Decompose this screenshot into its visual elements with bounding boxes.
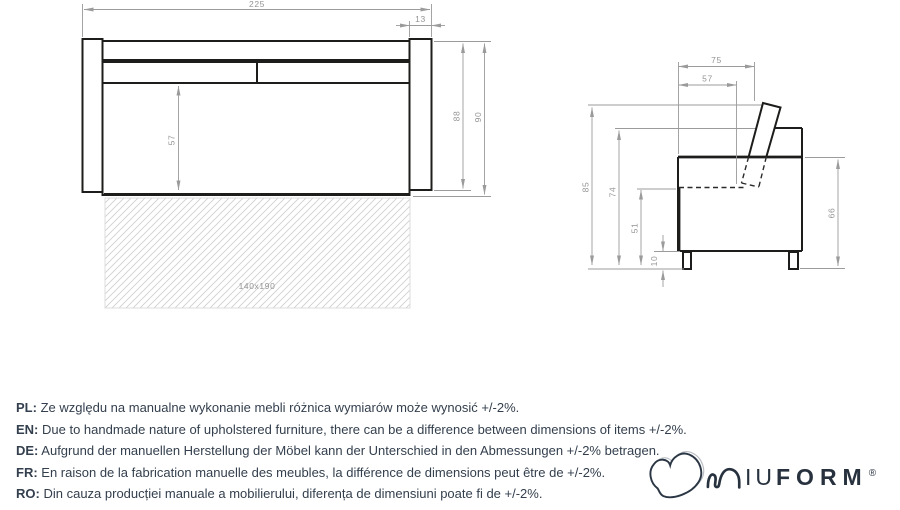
note-en: EN: Due to handmade nature of upholstere…: [16, 419, 676, 441]
note-de-label: DE:: [16, 443, 38, 458]
headrest-tilted: [749, 103, 781, 157]
bean-logo-icon: [644, 446, 706, 500]
note-fr: FR: En raison de la fabrication manuelle…: [16, 462, 676, 484]
note-ro: RO: Din cauza producției manuale a mobil…: [16, 483, 676, 505]
sleeping-area-label: 140x190: [239, 281, 276, 291]
furniture-spec-sheet: 140x190: [0, 0, 900, 510]
dim-leg-10: 10: [649, 256, 659, 267]
headrest-hidden-bottom: [742, 183, 759, 187]
dim-height-total-90: 90: [473, 112, 483, 123]
dim-seat-depth-57: 57: [702, 74, 713, 84]
miuform-logo: IUFORM®: [644, 443, 894, 505]
sofa-front-outline: [83, 39, 432, 195]
logo-wordmark-thin: IU: [745, 464, 776, 490]
side-reference-lines: [588, 105, 775, 129]
note-en-label: EN:: [16, 422, 38, 437]
dim-seat-level-51: 51: [630, 223, 640, 234]
side-dimensions: [588, 62, 845, 287]
sleeping-area-hatch: [105, 198, 410, 308]
leg-back: [789, 252, 798, 269]
dim-backrest-74: 74: [608, 187, 618, 198]
armrest-right: [410, 39, 432, 190]
technical-drawing: 140x190: [0, 0, 900, 340]
armrest-left: [83, 39, 103, 192]
dim-side-66: 66: [827, 208, 837, 219]
side-view: 75 57 85 74 51 10 66: [581, 55, 846, 287]
registered-trademark-icon: ®: [869, 468, 876, 479]
dim-depth-75: 75: [711, 55, 722, 65]
dim-width-total: 225: [249, 0, 265, 9]
sofa-side-outline: [678, 128, 802, 269]
dim-height-88: 88: [452, 111, 462, 122]
note-ro-label: RO:: [16, 486, 40, 501]
note-de: DE: Aufgrund der manuellen Herstellung d…: [16, 440, 676, 462]
note-fr-text: En raison de la fabrication manuelle des…: [41, 465, 605, 480]
leg-front: [683, 252, 691, 269]
dim-armrest-width: 13: [415, 14, 426, 24]
dim-height-85: 85: [581, 182, 591, 193]
note-de-text: Aufgrund der manuellen Herstellung der M…: [41, 443, 659, 458]
front-view: 140x190: [83, 0, 492, 308]
logo-wordmark: IUFORM®: [745, 466, 875, 494]
note-pl: PL: Ze względu na manualne wykonanie meb…: [16, 397, 676, 419]
headrest-hidden-left: [742, 157, 749, 183]
logo-wordmark-bold: FORM: [776, 464, 868, 490]
stylized-m-glyph: [706, 462, 744, 489]
note-fr-label: FR:: [16, 465, 38, 480]
headrest-hidden-right: [759, 157, 767, 187]
note-ro-text: Din cauza producției manuale a mobilieru…: [43, 486, 542, 501]
note-pl-text: Ze względu na manualne wykonanie mebli r…: [41, 400, 520, 415]
dim-seat-front-57: 57: [167, 135, 177, 146]
note-en-text: Due to handmade nature of upholstered fu…: [42, 422, 687, 437]
tolerance-notes: PL: Ze względu na manualne wykonanie meb…: [16, 397, 676, 505]
note-pl-label: PL:: [16, 400, 37, 415]
hidden-lines: [679, 157, 766, 188]
